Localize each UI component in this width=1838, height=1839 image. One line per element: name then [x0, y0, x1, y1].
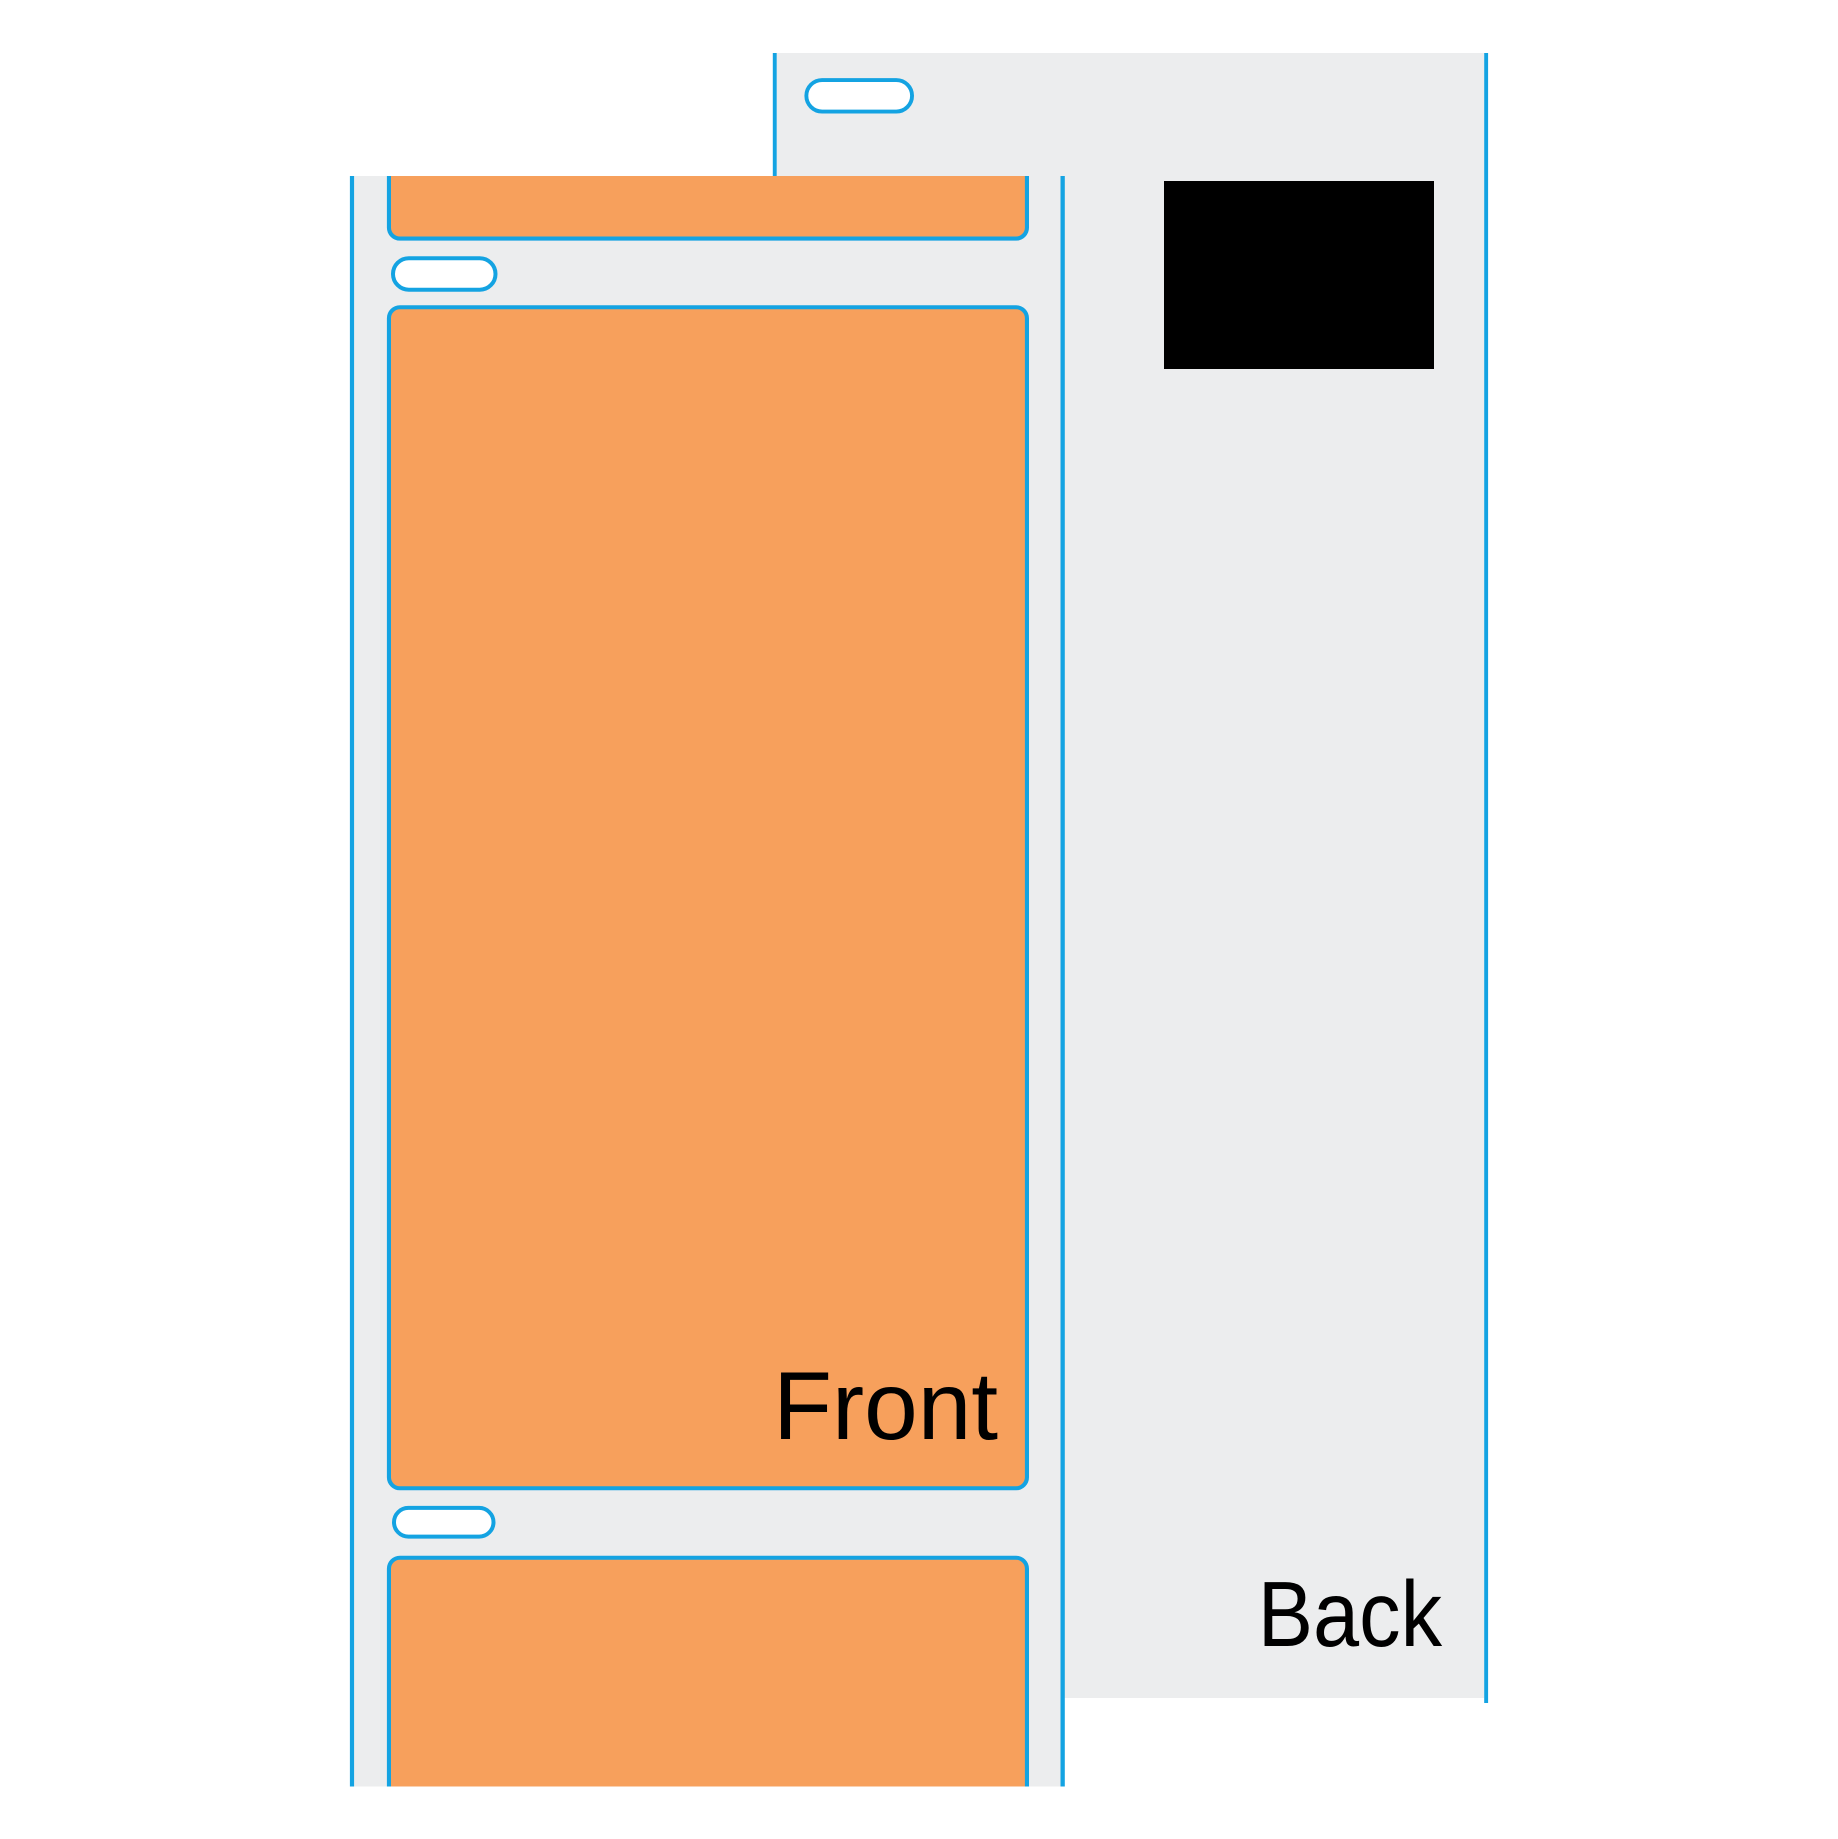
- svg-text:Back: Back: [1258, 1562, 1443, 1667]
- svg-text:Front: Front: [773, 1352, 998, 1460]
